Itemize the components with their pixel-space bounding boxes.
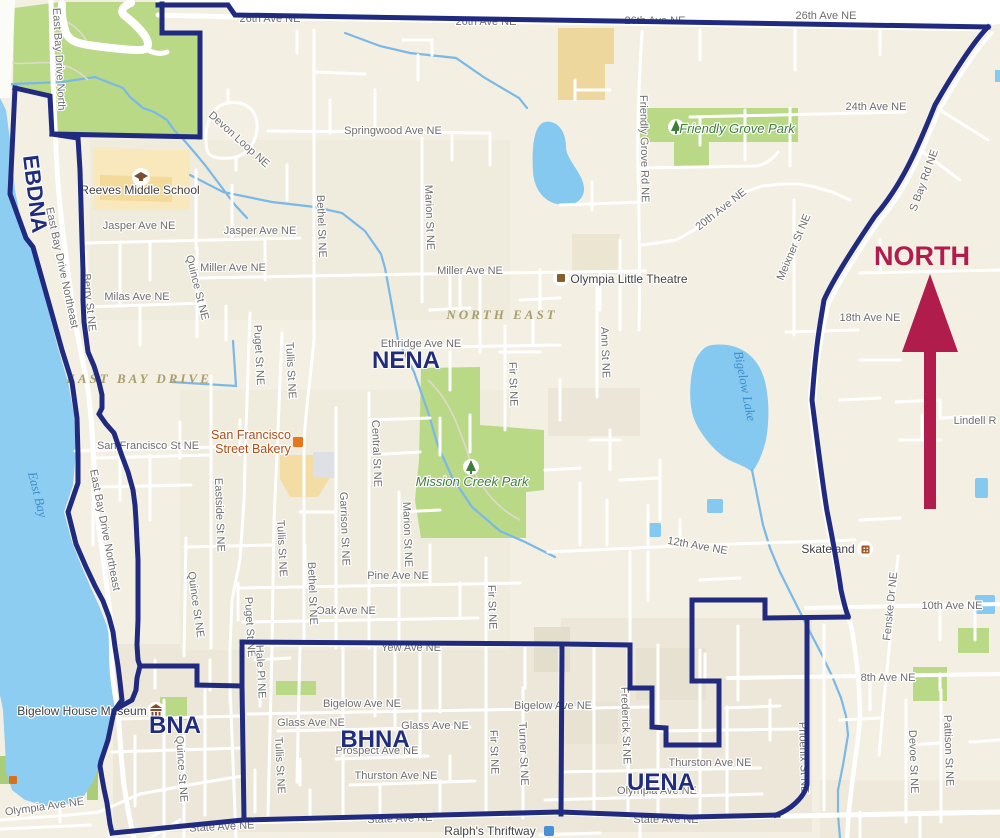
svg-text:Jasper Ave NE: Jasper Ave NE xyxy=(224,225,297,237)
svg-text:San Francisco: San Francisco xyxy=(211,428,291,442)
svg-text:24th Ave NE: 24th Ave NE xyxy=(846,101,907,113)
svg-text:Miller Ave NE: Miller Ave NE xyxy=(437,265,503,277)
svg-text:Fir St NE: Fir St NE xyxy=(485,585,499,630)
svg-text:Thurston Ave NE: Thurston Ave NE xyxy=(355,770,438,782)
svg-text:Marion St NE: Marion St NE xyxy=(400,502,414,568)
svg-text:Skateland: Skateland xyxy=(801,542,854,556)
svg-text:Bigelow House Museum: Bigelow House Museum xyxy=(17,704,146,718)
svg-text:Central St NE: Central St NE xyxy=(369,420,383,488)
svg-text:Marion St NE: Marion St NE xyxy=(422,185,436,251)
svg-text:EAST BAY DRIVE: EAST BAY DRIVE xyxy=(65,371,212,386)
svg-text:NORTH: NORTH xyxy=(874,241,970,271)
svg-text:Bigelow Ave NE: Bigelow Ave NE xyxy=(323,698,401,710)
svg-text:BHNA: BHNA xyxy=(340,726,409,753)
svg-text:Pine Ave NE: Pine Ave NE xyxy=(367,570,429,582)
svg-text:Glass Ave NE: Glass Ave NE xyxy=(277,717,345,729)
svg-text:8th Ave NE: 8th Ave NE xyxy=(861,672,916,684)
svg-text:Lindell R: Lindell R xyxy=(954,415,997,427)
svg-text:Milas Ave NE: Milas Ave NE xyxy=(104,291,169,303)
svg-text:Olympia Little Theatre: Olympia Little Theatre xyxy=(570,272,687,286)
svg-text:10th Ave NE: 10th Ave NE xyxy=(922,600,983,612)
svg-text:Friendly Grove Park: Friendly Grove Park xyxy=(679,121,796,136)
svg-text:Fir St NE: Fir St NE xyxy=(506,362,520,407)
svg-text:18th Ave NE: 18th Ave NE xyxy=(840,312,901,324)
svg-text:Springwood Ave NE: Springwood Ave NE xyxy=(344,125,442,137)
svg-text:Oak Ave NE: Oak Ave NE xyxy=(316,605,376,617)
svg-text:Bethel St NE: Bethel St NE xyxy=(305,562,319,625)
svg-text:Reeves Middle School: Reeves Middle School xyxy=(80,183,199,197)
svg-text:Turner St NE: Turner St NE xyxy=(516,722,530,786)
svg-text:Thurston Ave NE: Thurston Ave NE xyxy=(669,757,752,769)
svg-text:Pattison St NE: Pattison St NE xyxy=(941,715,955,787)
svg-text:Glass Ave NE: Glass Ave NE xyxy=(401,720,469,732)
svg-text:Bethel St NE: Bethel St NE xyxy=(314,195,328,258)
svg-text:Street Bakery: Street Bakery xyxy=(215,442,291,456)
svg-text:Jasper Ave NE: Jasper Ave NE xyxy=(103,220,176,232)
svg-text:San Francisco St NE: San Francisco St NE xyxy=(97,440,199,452)
svg-text:BNA: BNA xyxy=(149,712,201,739)
svg-text:NENA: NENA xyxy=(372,347,440,374)
svg-text:26th Ave NE: 26th Ave NE xyxy=(796,10,857,22)
svg-text:Bigelow Ave NE: Bigelow Ave NE xyxy=(514,700,592,712)
svg-text:Fir St NE: Fir St NE xyxy=(487,730,501,775)
svg-text:Ralph's Thriftway: Ralph's Thriftway xyxy=(444,824,535,838)
svg-text:Mission Creek Park: Mission Creek Park xyxy=(416,474,530,489)
svg-text:NORTH EAST: NORTH EAST xyxy=(445,307,557,322)
svg-text:Devoe St NE: Devoe St NE xyxy=(906,730,920,794)
svg-text:Ann St NE: Ann St NE xyxy=(598,327,612,379)
svg-text:Miller Ave NE: Miller Ave NE xyxy=(200,262,266,274)
svg-text:UENA: UENA xyxy=(627,769,695,796)
svg-text:Friendly Grove Rd NE: Friendly Grove Rd NE xyxy=(637,95,651,203)
